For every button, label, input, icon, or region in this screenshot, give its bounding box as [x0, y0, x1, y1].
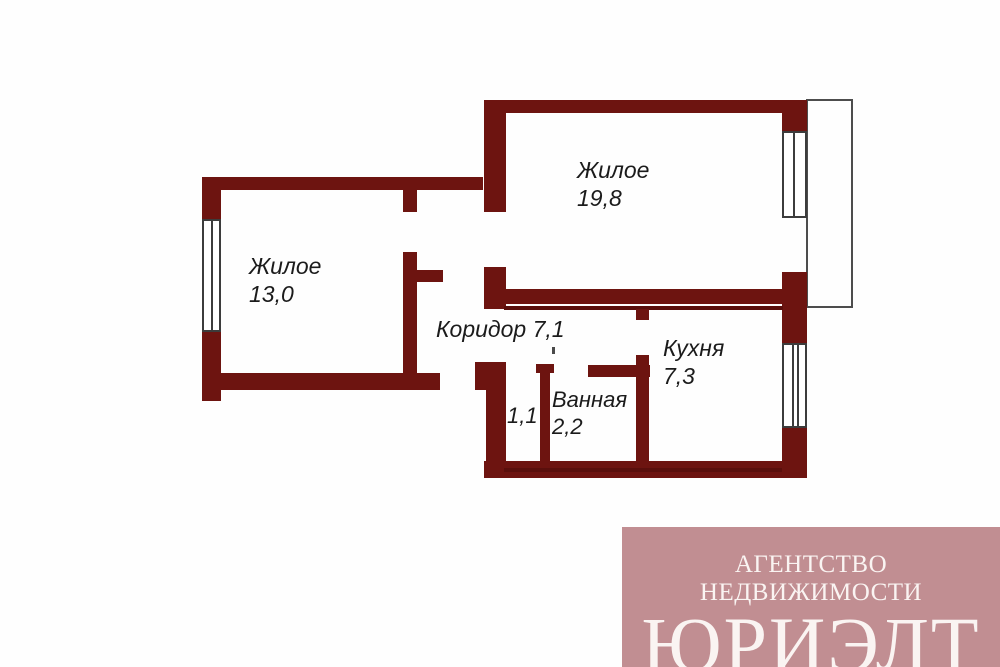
room-area: 7,3: [663, 362, 724, 390]
room-name: Коридор 7,1: [436, 315, 565, 343]
room-area: 1,1: [507, 403, 538, 430]
floor-plan: Жилое 19,8 Жилое 13,0 Коридор 7,1 Кухня …: [0, 0, 1000, 667]
room-area: 2,2: [552, 414, 627, 441]
window-mullion: [211, 221, 213, 330]
plan-tick: [552, 347, 555, 354]
wall-segment: [475, 362, 506, 390]
wall-segment: [403, 190, 417, 212]
room-area: 13,0: [249, 280, 321, 308]
wall-segment: [202, 332, 221, 401]
wall-segment: [403, 252, 417, 390]
door-jamb: [417, 270, 443, 282]
room-area: 19,8: [577, 184, 649, 212]
wall-segment: [782, 100, 807, 131]
wall-segment: [504, 468, 783, 472]
window-mullion: [797, 345, 799, 426]
room-label-kitchen: Кухня 7,3: [663, 334, 724, 390]
room-name: Жилое: [577, 156, 649, 184]
wall-segment: [484, 100, 807, 113]
room-name: Жилое: [249, 252, 321, 280]
left-room-window: [202, 219, 221, 332]
wall-segment: [484, 100, 506, 212]
wall-segment: [540, 364, 550, 461]
agency-watermark: АГЕНТСТВО НЕДВИЖИМОСТИ ЮРИЭЛТ: [622, 527, 1000, 667]
window-mullion: [793, 133, 795, 216]
room-name: Кухня: [663, 334, 724, 362]
wall-segment: [202, 177, 221, 219]
room-label-bathroom: Ванная 2,2: [552, 387, 627, 441]
room-label-living-19: Жилое 19,8: [577, 156, 649, 212]
room-name: Ванная: [552, 387, 627, 414]
agency-subtitle: АГЕНТСТВО НЕДВИЖИМОСТИ: [622, 551, 1000, 606]
door-jamb: [636, 309, 649, 320]
wall-segment: [782, 428, 807, 478]
wall-segment: [484, 289, 807, 304]
wall-segment: [782, 272, 807, 343]
room-label-wc: 1,1: [507, 403, 538, 430]
wall-segment: [202, 177, 483, 190]
window-mullion: [792, 345, 794, 426]
big-room-window: [782, 131, 807, 218]
room-label-living-13: Жилое 13,0: [249, 252, 321, 308]
balcony-outline: [806, 99, 853, 308]
agency-logo-text: ЮРИЭЛТ: [622, 606, 1000, 667]
kitchen-window: [782, 343, 807, 428]
wall-segment: [588, 365, 650, 377]
room-label-corridor: Коридор 7,1: [436, 315, 565, 343]
